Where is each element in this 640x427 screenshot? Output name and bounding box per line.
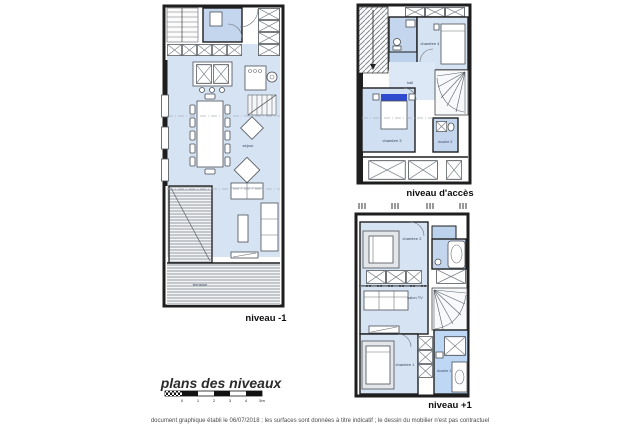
tall-units-column [258, 8, 279, 55]
wardrobe-box [418, 336, 432, 349]
dressing-2 [432, 226, 456, 239]
window [162, 127, 169, 149]
plan-niveau-acces: chambre 4 hall chambre 3 [358, 5, 474, 199]
douche-3: douche 3 [433, 118, 458, 152]
scale-tick: 3 [229, 398, 232, 403]
inner-deck [169, 186, 212, 263]
toilet [394, 39, 401, 46]
wardrobe-column [418, 336, 432, 377]
scale-tick: 4 [245, 398, 248, 403]
footer-disclaimer: document graphique établi le 06/07/2018 … [151, 418, 489, 424]
skylight [409, 161, 438, 180]
plan-niveau-plus-1: chambre 2 salon TV [356, 203, 472, 411]
chambre1-label: chambre 1 [396, 362, 416, 367]
bed3-headboard [381, 94, 407, 101]
staircase-mid [248, 95, 276, 115]
chambre2-label: chambre 2 [403, 236, 423, 241]
sink [448, 123, 454, 131]
closet-box [445, 7, 464, 16]
chambre-2: chambre 2 [360, 222, 428, 286]
toilet [435, 259, 441, 265]
terrasse-label: terrasse [193, 282, 208, 287]
fixture [436, 352, 443, 358]
utility-room [203, 8, 242, 42]
chambre-1: chambre 1 [360, 334, 418, 394]
island-unit [213, 65, 228, 84]
vanity [452, 362, 467, 392]
chambre3-label: chambre 3 [383, 138, 403, 143]
bathroom-2 [432, 239, 466, 269]
scale-tick: 1 [197, 398, 200, 403]
hall-label: hall [407, 80, 413, 85]
wall-ticks [359, 203, 466, 209]
closet-box [366, 270, 385, 283]
counter-box [167, 44, 181, 55]
left-wall-windows [162, 60, 169, 186]
spiral-stairs-access [435, 70, 468, 115]
bed-2 [369, 236, 393, 263]
shower-tray [444, 337, 465, 356]
salon-tv: salon TV [360, 286, 428, 334]
exterior-stairs [359, 7, 388, 73]
counter-box [227, 44, 241, 55]
counter-box [182, 44, 196, 55]
floor-plans-sheet: terrasse séjour niveau -1 [0, 0, 640, 427]
wardrobe-box [418, 350, 432, 363]
skylight [446, 161, 461, 180]
closet-box [258, 44, 279, 55]
plan-niveau-minus-1: terrasse séjour niveau -1 [162, 6, 288, 324]
closet-box [258, 8, 279, 19]
bed-4 [441, 24, 465, 64]
plans-drawing: terrasse séjour niveau -1 [0, 0, 640, 427]
counter-box [197, 44, 211, 55]
salon-tv-label: salon TV [407, 295, 423, 300]
title-block: plans des niveaux 0 1 2 3 4 5m [160, 375, 283, 403]
island-unit [196, 65, 211, 84]
terrace: terrasse [167, 263, 280, 305]
douche-1: douche 1 [434, 330, 468, 394]
scale-tick: 2 [213, 398, 216, 403]
boiler [210, 12, 222, 26]
closet-box [425, 7, 444, 16]
stool [220, 88, 225, 93]
sink [406, 20, 415, 27]
closet-box [258, 32, 279, 43]
scale-tick: 0 [181, 398, 184, 403]
closet-box [386, 270, 405, 283]
level-label-access: niveau d'accès [406, 188, 473, 199]
sejour-label: séjour [243, 143, 255, 148]
window [162, 95, 169, 117]
stool [210, 88, 215, 93]
douche3-label: douche 3 [438, 140, 452, 144]
chambre4-label: chambre 4 [421, 41, 441, 46]
sofa-three-seat [261, 203, 278, 251]
kitchen-counter [167, 44, 241, 55]
closet-box [258, 20, 279, 31]
window [162, 159, 169, 181]
stool [200, 88, 205, 93]
spiral-stairs-plus1 [432, 288, 467, 330]
nightstand [434, 24, 439, 30]
shower-tray [436, 121, 447, 131]
level-label-minus1: niveau -1 [245, 313, 287, 324]
counter-box [212, 44, 226, 55]
round-stove [267, 72, 277, 82]
skylight [369, 161, 405, 180]
bed-3 [381, 101, 407, 129]
chambre-3: chambre 3 [362, 88, 416, 152]
staircase-top-left [167, 8, 198, 42]
wardrobe-box [418, 364, 432, 377]
nightstand [373, 94, 379, 100]
douche1-label: douche 1 [437, 369, 451, 373]
closet-box [405, 7, 424, 16]
level-label-plus1: niveau +1 [428, 400, 472, 411]
nightstand [409, 94, 415, 100]
scale-tick: 5m [259, 398, 265, 403]
scale-bar: 0 1 2 3 4 5m [165, 391, 265, 403]
skylight-deck [362, 157, 468, 179]
sheet-title: plans des niveaux [160, 375, 283, 391]
sofa-tv [364, 291, 408, 310]
closet-box [406, 270, 421, 283]
shower-2 [437, 270, 466, 284]
coffee-table [238, 215, 248, 242]
